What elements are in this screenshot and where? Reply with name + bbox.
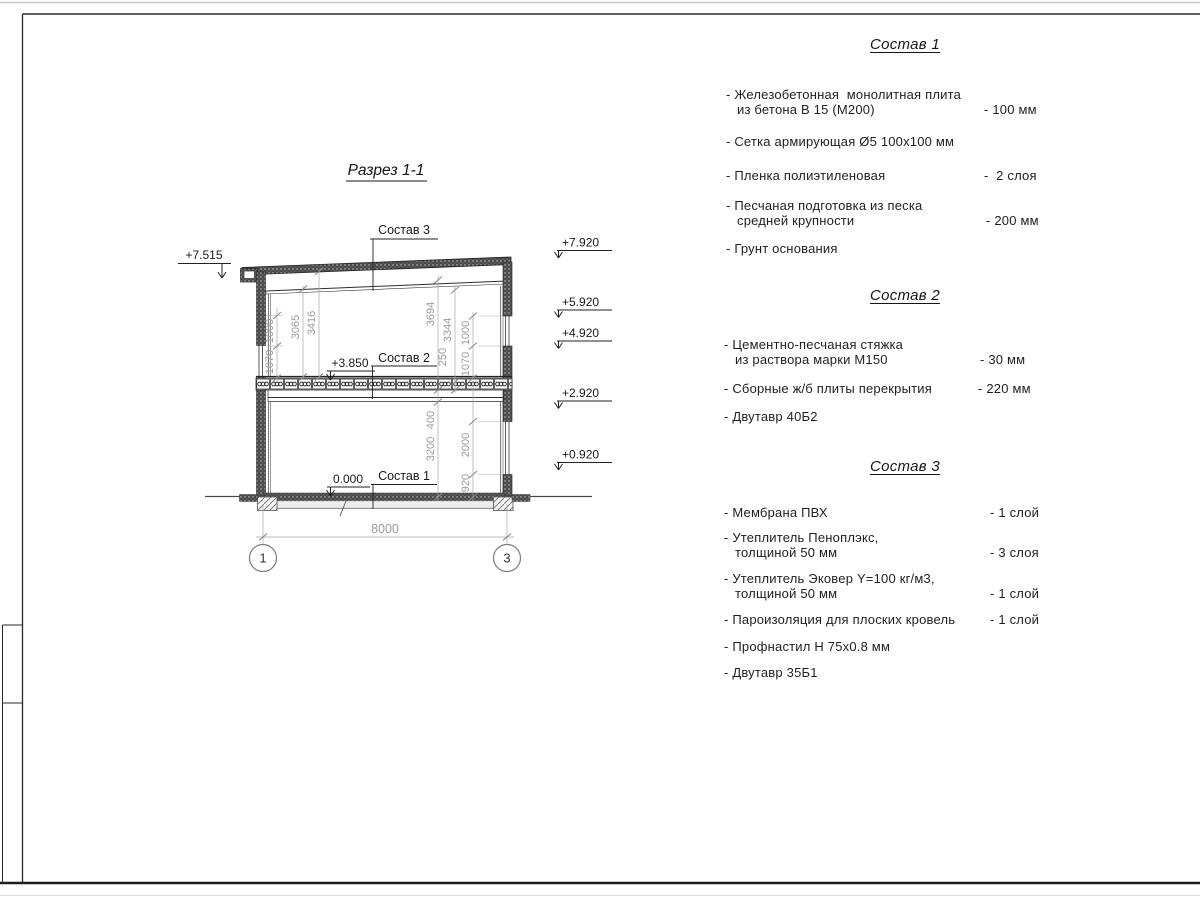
dim-1000-left: 1000 xyxy=(264,319,276,343)
list-item-text: толщиной 50 мм xyxy=(735,586,837,601)
elevation-mark-7920: +7.920 xyxy=(555,236,613,259)
left-window xyxy=(259,346,263,377)
span-dimension: 8000 xyxy=(256,504,514,545)
list-item-text: средней крупности xyxy=(737,213,854,228)
list-item-text: - Сетка армирующая Ø5 100x100 мм xyxy=(726,134,954,149)
list-item-text: - Железобетонная монолитная плита xyxy=(726,87,961,102)
dim-3416: 3416 xyxy=(306,311,318,335)
svg-text:+5.920: +5.920 xyxy=(562,295,599,309)
layer-ref-sostav2-text: Состав 2 xyxy=(378,351,430,365)
dim-920: 920 xyxy=(460,474,472,492)
frame-stamp-left xyxy=(3,625,23,883)
list-title-2: Состав 2 xyxy=(835,287,975,304)
foundation-block-right xyxy=(494,497,514,511)
list-item-value: - 2 слоя xyxy=(984,168,1037,183)
dim-8000: 8000 xyxy=(371,522,399,536)
dim-250: 250 xyxy=(437,348,449,366)
eaves-detail xyxy=(241,269,258,283)
layer-ref-sostav2: Состав 2 xyxy=(371,351,437,399)
svg-text:+7.920: +7.920 xyxy=(562,236,599,250)
right-upper-window xyxy=(506,316,510,346)
list-item-text: - Пароизоляция для плоских кровель xyxy=(724,612,955,627)
right-lower-window xyxy=(506,422,510,475)
list-title-3: Состав 3 xyxy=(835,458,975,475)
axis-bubbles: 1 3 xyxy=(250,545,521,572)
elevation-mark-0920: +0.920 xyxy=(555,448,613,471)
svg-text:+4.920: +4.920 xyxy=(562,326,599,340)
list-item-value: - 200 мм xyxy=(986,213,1039,228)
layer-ref-sostav3-text: Состав 3 xyxy=(378,223,430,237)
list-item-text: - Мембрана ПВХ xyxy=(724,505,828,520)
ledge-left xyxy=(240,495,258,502)
axis-label-3: 3 xyxy=(503,551,510,566)
list-item-value: - 220 мм xyxy=(978,381,1031,396)
dim-3344: 3344 xyxy=(442,318,454,342)
foundation-block-left xyxy=(258,497,278,511)
list-item-text: - Профнастил Н 75x0.8 мм xyxy=(724,639,890,654)
list-item-value: - 1 слой xyxy=(990,586,1039,601)
elevation-mark-2920: +2.920 xyxy=(555,386,613,409)
list-item-text: - Песчаная подготовка из песка xyxy=(726,198,922,213)
dim-400: 400 xyxy=(425,411,437,429)
list-item-text: толщиной 50 мм xyxy=(735,545,837,560)
list-item-value: - 3 слоя xyxy=(990,545,1039,560)
floor-beam-lines xyxy=(268,390,504,402)
dim-3694: 3694 xyxy=(425,302,437,326)
dim-2000: 2000 xyxy=(460,433,472,457)
layer-ref-sostav3: Состав 3 xyxy=(370,223,438,291)
elevation-mark-7515: +7.515 xyxy=(178,248,231,278)
list-title-1: Состав 1 xyxy=(835,36,975,53)
svg-text:+2.920: +2.920 xyxy=(562,386,599,400)
list-item-value: - 1 слой xyxy=(990,612,1039,627)
list-item-text: - Двутавр 40Б2 xyxy=(724,409,818,424)
list-item-text: - Сборные ж/б плиты перекрытия xyxy=(724,381,932,396)
list-item-text: - Двутавр 35Б1 xyxy=(724,665,818,680)
layer-ref-sostav1-text: Состав 1 xyxy=(378,469,430,483)
list-item-value: - 1 слой xyxy=(990,505,1039,520)
elevation-mark-4920: +4.920 xyxy=(555,326,613,349)
dimension-text-left: 1000 1070 3065 3416 xyxy=(264,311,318,374)
ceiling-lines xyxy=(266,281,506,294)
elevation-mark-5920: +5.920 xyxy=(555,295,613,318)
list-item-text: - Цементно-песчаная стяжка xyxy=(724,337,903,352)
list-item-text: из раствора марки М150 xyxy=(735,352,888,367)
axis-label-1: 1 xyxy=(259,551,266,566)
dim-3065: 3065 xyxy=(290,315,302,339)
list-item-text: - Грунт основания xyxy=(726,241,838,256)
list-item-text: - Утеплитель Пеноплэкс, xyxy=(724,530,879,545)
ledge-right xyxy=(512,495,530,502)
dim-3200: 3200 xyxy=(425,437,437,461)
dim-1000-right: 1000 xyxy=(460,321,472,345)
svg-text:+3.850: +3.850 xyxy=(331,356,368,370)
sheet-frame xyxy=(0,3,1200,896)
dim-1070-left: 1070 xyxy=(264,350,276,374)
svg-text:+0.920: +0.920 xyxy=(562,448,599,462)
elevation-mark-0000: 0.000 xyxy=(327,472,371,496)
section-drawing-svg: Разрез 1-1 xyxy=(0,0,1200,900)
drawing-title: Разрез 1-1 xyxy=(346,162,427,181)
list-item-text: - Пленка полиэтиленовая xyxy=(726,168,885,183)
svg-text:0.000: 0.000 xyxy=(333,472,363,486)
drawing-sheet: Разрез 1-1 xyxy=(0,0,1200,900)
list-item-text: из бетона В 15 (М200) xyxy=(737,102,875,117)
intermediate-floor-assembly xyxy=(256,377,512,402)
list-item-value: - 100 мм xyxy=(984,102,1037,117)
drawing-title-text: Разрез 1-1 xyxy=(348,162,425,179)
list-item-value: - 30 мм xyxy=(980,352,1025,367)
svg-text:+7.515: +7.515 xyxy=(185,248,222,262)
dim-1070-right: 1070 xyxy=(460,352,472,376)
list-item-text: - Утеплитель Эковер Y=100 кг/м3, xyxy=(724,571,935,586)
roof-assembly xyxy=(241,257,512,294)
